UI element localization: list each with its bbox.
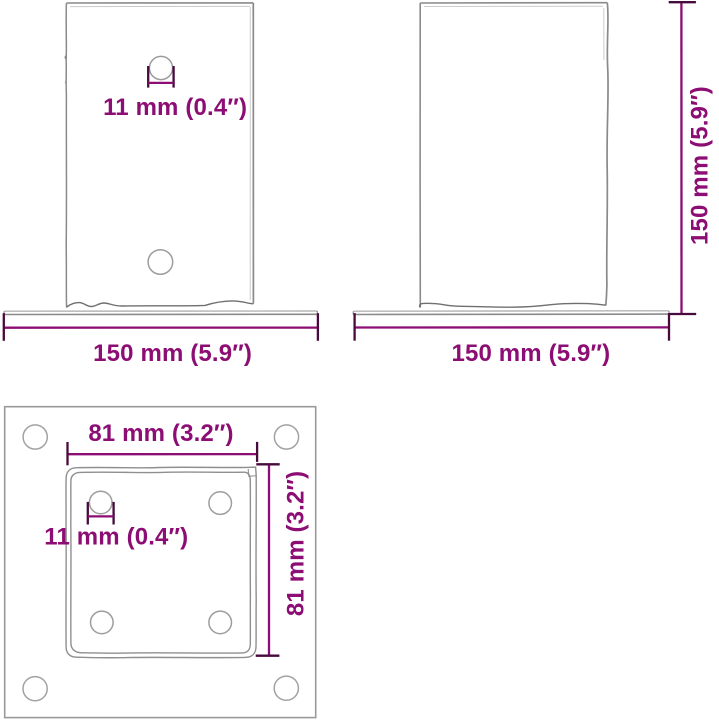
svg-text:81 mm (3.2″): 81 mm (3.2″)	[88, 420, 233, 447]
svg-text:11 mm (0.4″): 11 mm (0.4″)	[44, 523, 188, 550]
svg-text:150 mm (5.9″): 150 mm (5.9″)	[93, 340, 252, 367]
svg-text:81 mm (3.2″): 81 mm (3.2″)	[283, 471, 310, 616]
svg-text:150 mm (5.9″): 150 mm (5.9″)	[451, 340, 610, 367]
svg-text:11 mm (0.4″): 11 mm (0.4″)	[103, 94, 247, 121]
svg-text:150 mm (5.9″): 150 mm (5.9″)	[687, 86, 714, 245]
